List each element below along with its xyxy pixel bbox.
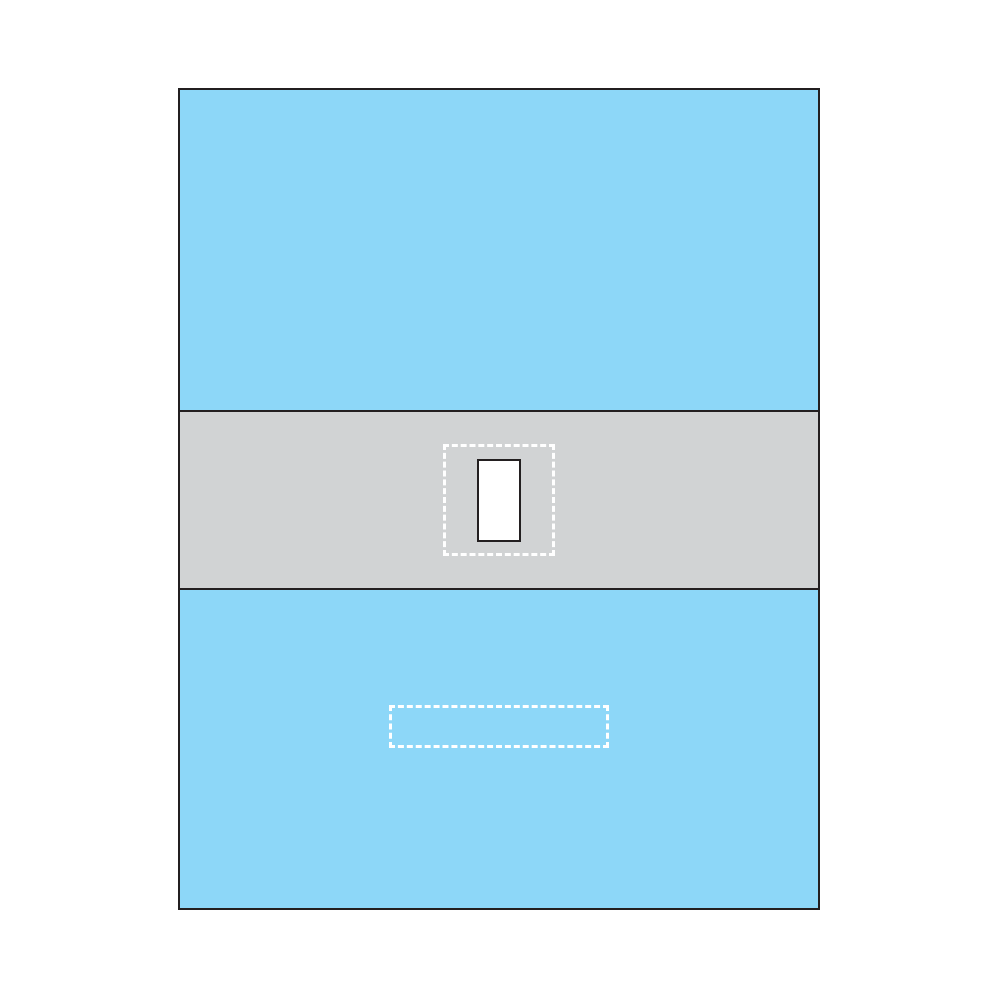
fenestration-aperture	[477, 459, 521, 542]
diagram-canvas	[0, 0, 1000, 1000]
drape-bottom-panel	[180, 590, 818, 908]
fenestration-dashed-zone	[443, 444, 555, 556]
drape-top-panel	[180, 90, 818, 410]
reinforcement-band	[180, 410, 818, 590]
adhesive-strip-dashed-zone	[389, 705, 609, 748]
drape-outline	[178, 88, 820, 910]
